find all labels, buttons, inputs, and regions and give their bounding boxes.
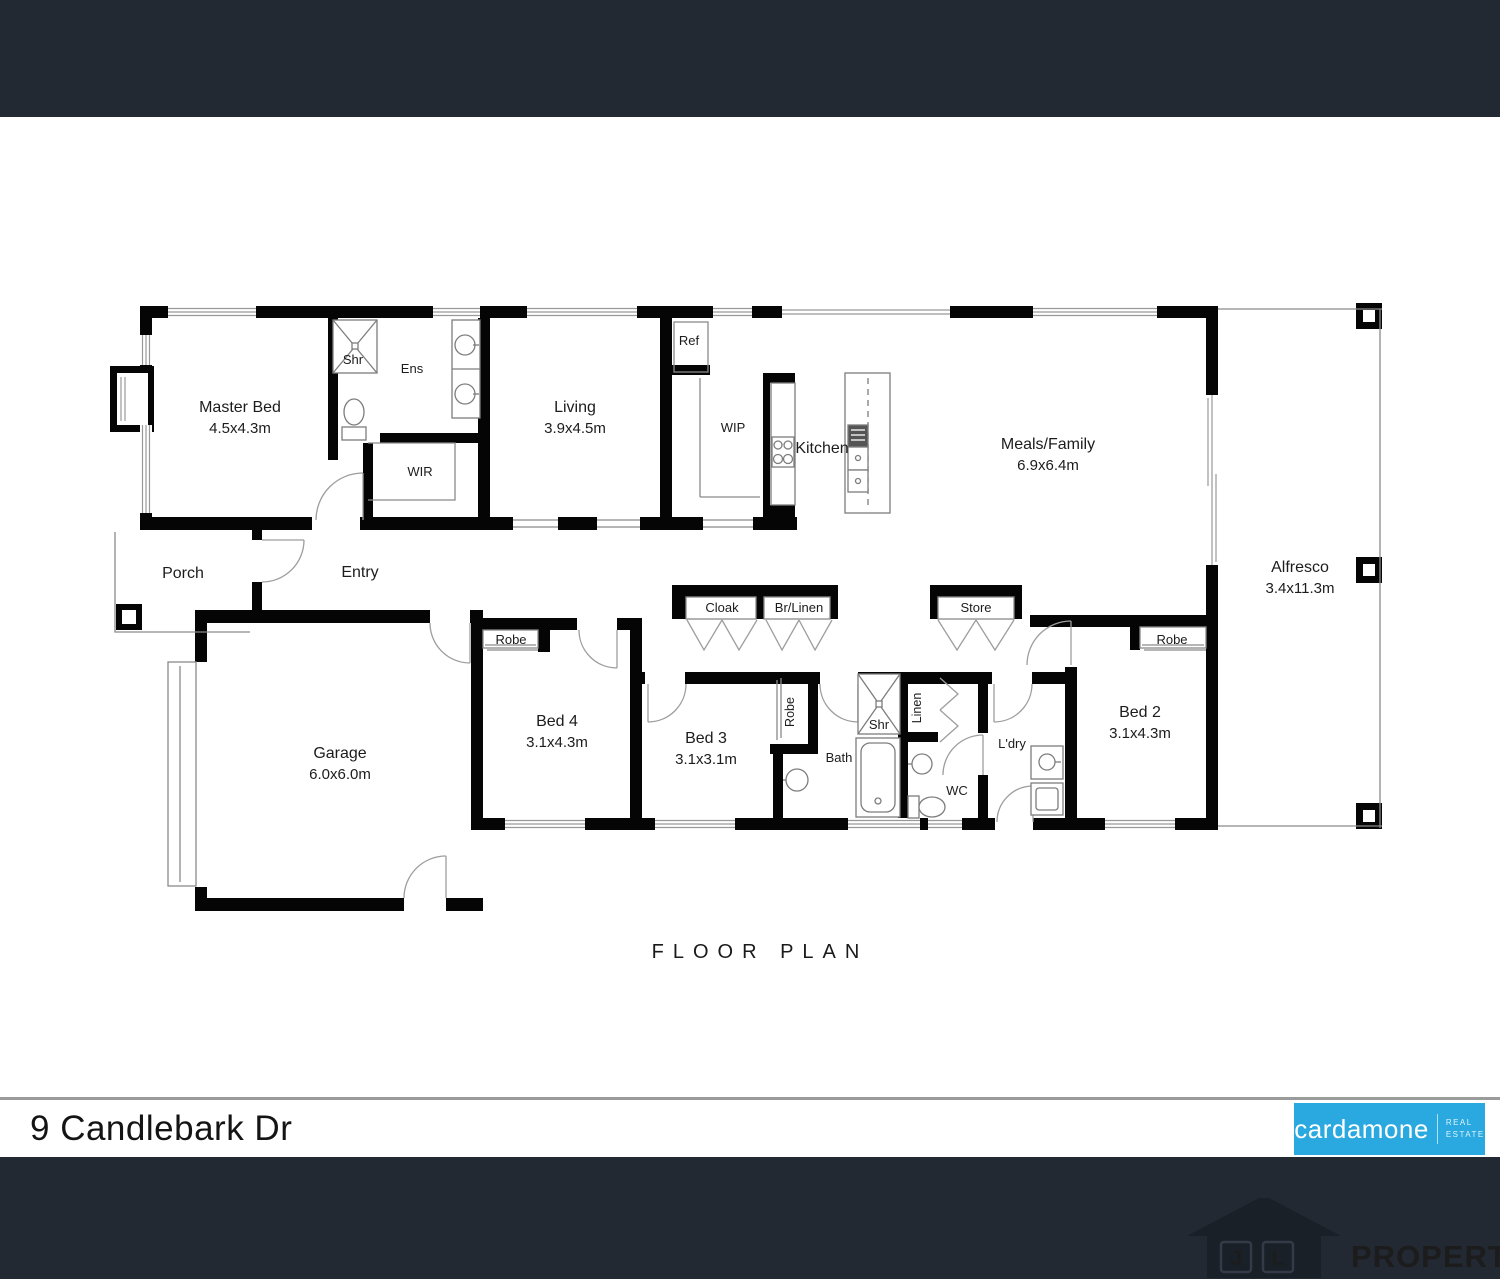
- brand-name: cardamone: [1294, 1114, 1429, 1145]
- label-kitchen: Kitchen: [795, 440, 848, 457]
- label-ref: Ref: [679, 333, 700, 348]
- kitchen-bench: [771, 383, 795, 505]
- room-dims-living: 3.9x4.5m: [544, 420, 606, 437]
- brand-tagline-top: REAL: [1446, 1117, 1485, 1129]
- brand-tagline-bottom: ESTATE: [1446, 1129, 1485, 1141]
- room-dims-garage: 6.0x6.0m: [309, 766, 371, 783]
- label-store: Store: [960, 600, 991, 615]
- label-cloak: Cloak: [705, 600, 739, 615]
- laundry-fixtures: [1031, 746, 1063, 815]
- watermark-letter-l: L: [1272, 1247, 1285, 1270]
- wc-fixtures: [908, 754, 945, 818]
- watermark-property-text: PROPERTY: [1351, 1239, 1500, 1274]
- island-bench: [845, 373, 890, 513]
- room-dims-bed2: 3.1x4.3m: [1109, 725, 1171, 742]
- room-dims-meals-family: 6.9x6.4m: [1017, 457, 1079, 474]
- walls: [110, 303, 1382, 911]
- thin-outlines: [115, 309, 1382, 886]
- label-ens: Ens: [401, 361, 424, 376]
- label-ldry: L'dry: [998, 736, 1026, 751]
- room-label-meals-family: Meals/Family: [1001, 436, 1095, 453]
- room-dims-alfresco: 3.4x11.3m: [1266, 580, 1335, 597]
- label-entry: Entry: [341, 564, 378, 581]
- room-label-living: Living: [554, 399, 596, 416]
- label-robe-bed2: Robe: [1156, 632, 1187, 647]
- address-text: 9 Candlebark Dr: [30, 1109, 292, 1149]
- label-wip: WIP: [721, 420, 746, 435]
- house-icon: J L: [1187, 1198, 1341, 1278]
- address-bar: 9 Candlebark Dr cardamone REAL ESTATE: [0, 1100, 1500, 1157]
- room-label-bed2: Bed 2: [1119, 704, 1161, 721]
- label-wc: WC: [946, 783, 968, 798]
- label-porch: Porch: [162, 565, 204, 582]
- post-insets: [117, 310, 1375, 822]
- label-wir: WIR: [407, 464, 432, 479]
- page: Master Bed 4.5x4.3m Living 3.9x4.5m Meal…: [0, 0, 1500, 1279]
- label-robe-bed3: Robe: [783, 697, 797, 727]
- label-br-linen: Br/Linen: [775, 600, 823, 615]
- cardamone-logo: cardamone REAL ESTATE: [1294, 1103, 1485, 1155]
- basin-bath: [783, 769, 808, 791]
- doors: [262, 473, 1071, 898]
- watermark-letter-j: J: [1230, 1247, 1242, 1270]
- vanity-ens: [452, 320, 480, 418]
- label-shr-bath: Shr: [869, 717, 890, 732]
- room-label-master-bed: Master Bed: [199, 399, 281, 416]
- logo-divider: [1437, 1114, 1438, 1144]
- room-label-bed3: Bed 3: [685, 730, 727, 747]
- room-dims-master-bed: 4.5x4.3m: [209, 420, 271, 437]
- brand-tagline: REAL ESTATE: [1446, 1117, 1485, 1140]
- room-label-alfresco: Alfresco: [1271, 559, 1329, 576]
- room-dims-bed3: 3.1x3.1m: [675, 751, 737, 768]
- toilet-ens: [342, 399, 366, 440]
- floor-plan-canvas: Master Bed 4.5x4.3m Living 3.9x4.5m Meal…: [0, 117, 1500, 1097]
- floor-plan-drawing: Master Bed 4.5x4.3m Living 3.9x4.5m Meal…: [0, 117, 1500, 1097]
- label-bath: Bath: [826, 750, 853, 765]
- jl-property-watermark: J L PROPERTY: [1185, 1196, 1500, 1279]
- label-linen: Linen: [910, 693, 924, 724]
- room-label-bed4: Bed 4: [536, 713, 578, 730]
- label-robe-bed4: Robe: [495, 632, 526, 647]
- bathtub: [856, 738, 900, 817]
- label-shr-ens: Shr: [343, 352, 364, 367]
- room-label-garage: Garage: [313, 745, 366, 762]
- room-dims-bed4: 3.1x4.3m: [526, 734, 588, 751]
- plan-caption: FLOOR PLAN: [652, 941, 869, 963]
